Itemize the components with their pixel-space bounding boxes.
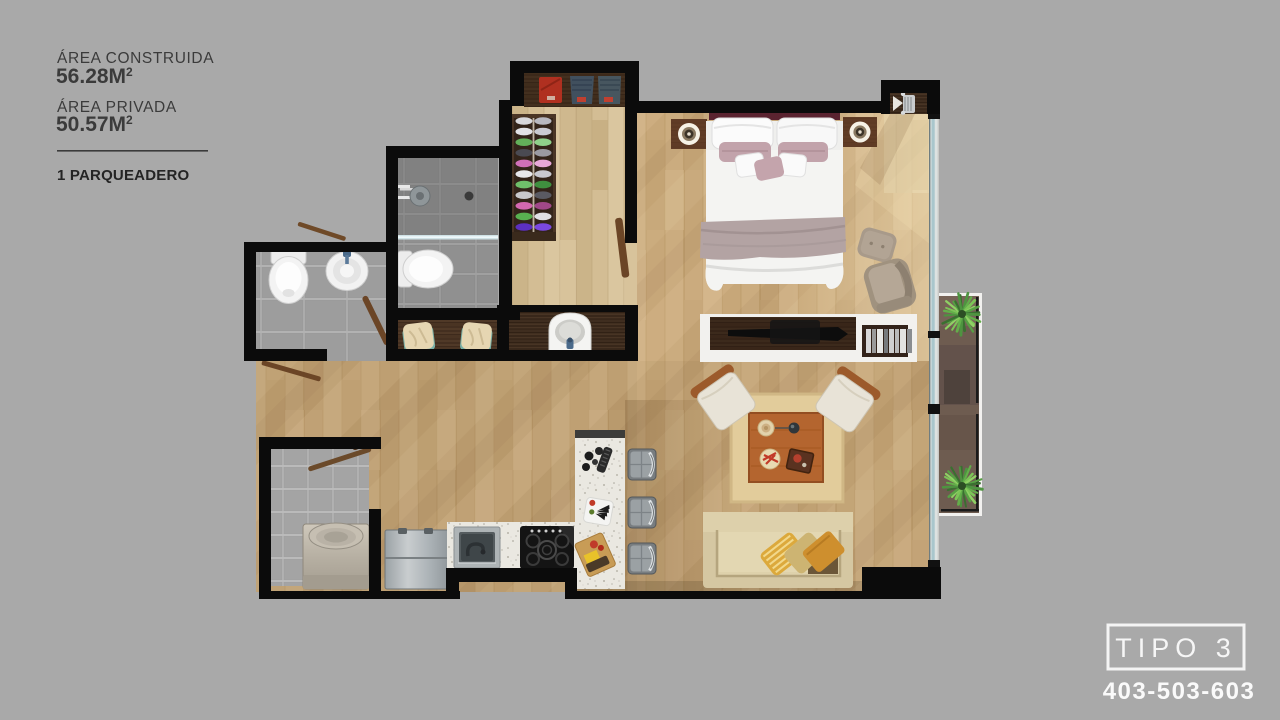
- svg-text:TIPO 3: TIPO 3: [1115, 633, 1237, 663]
- svg-text:50.57M2: 50.57M2: [56, 113, 133, 136]
- svg-text:56.28M2: 56.28M2: [56, 65, 133, 88]
- svg-text:403-503-603: 403-503-603: [1103, 678, 1256, 705]
- svg-text:1 PARQUEADERO: 1 PARQUEADERO: [57, 167, 189, 184]
